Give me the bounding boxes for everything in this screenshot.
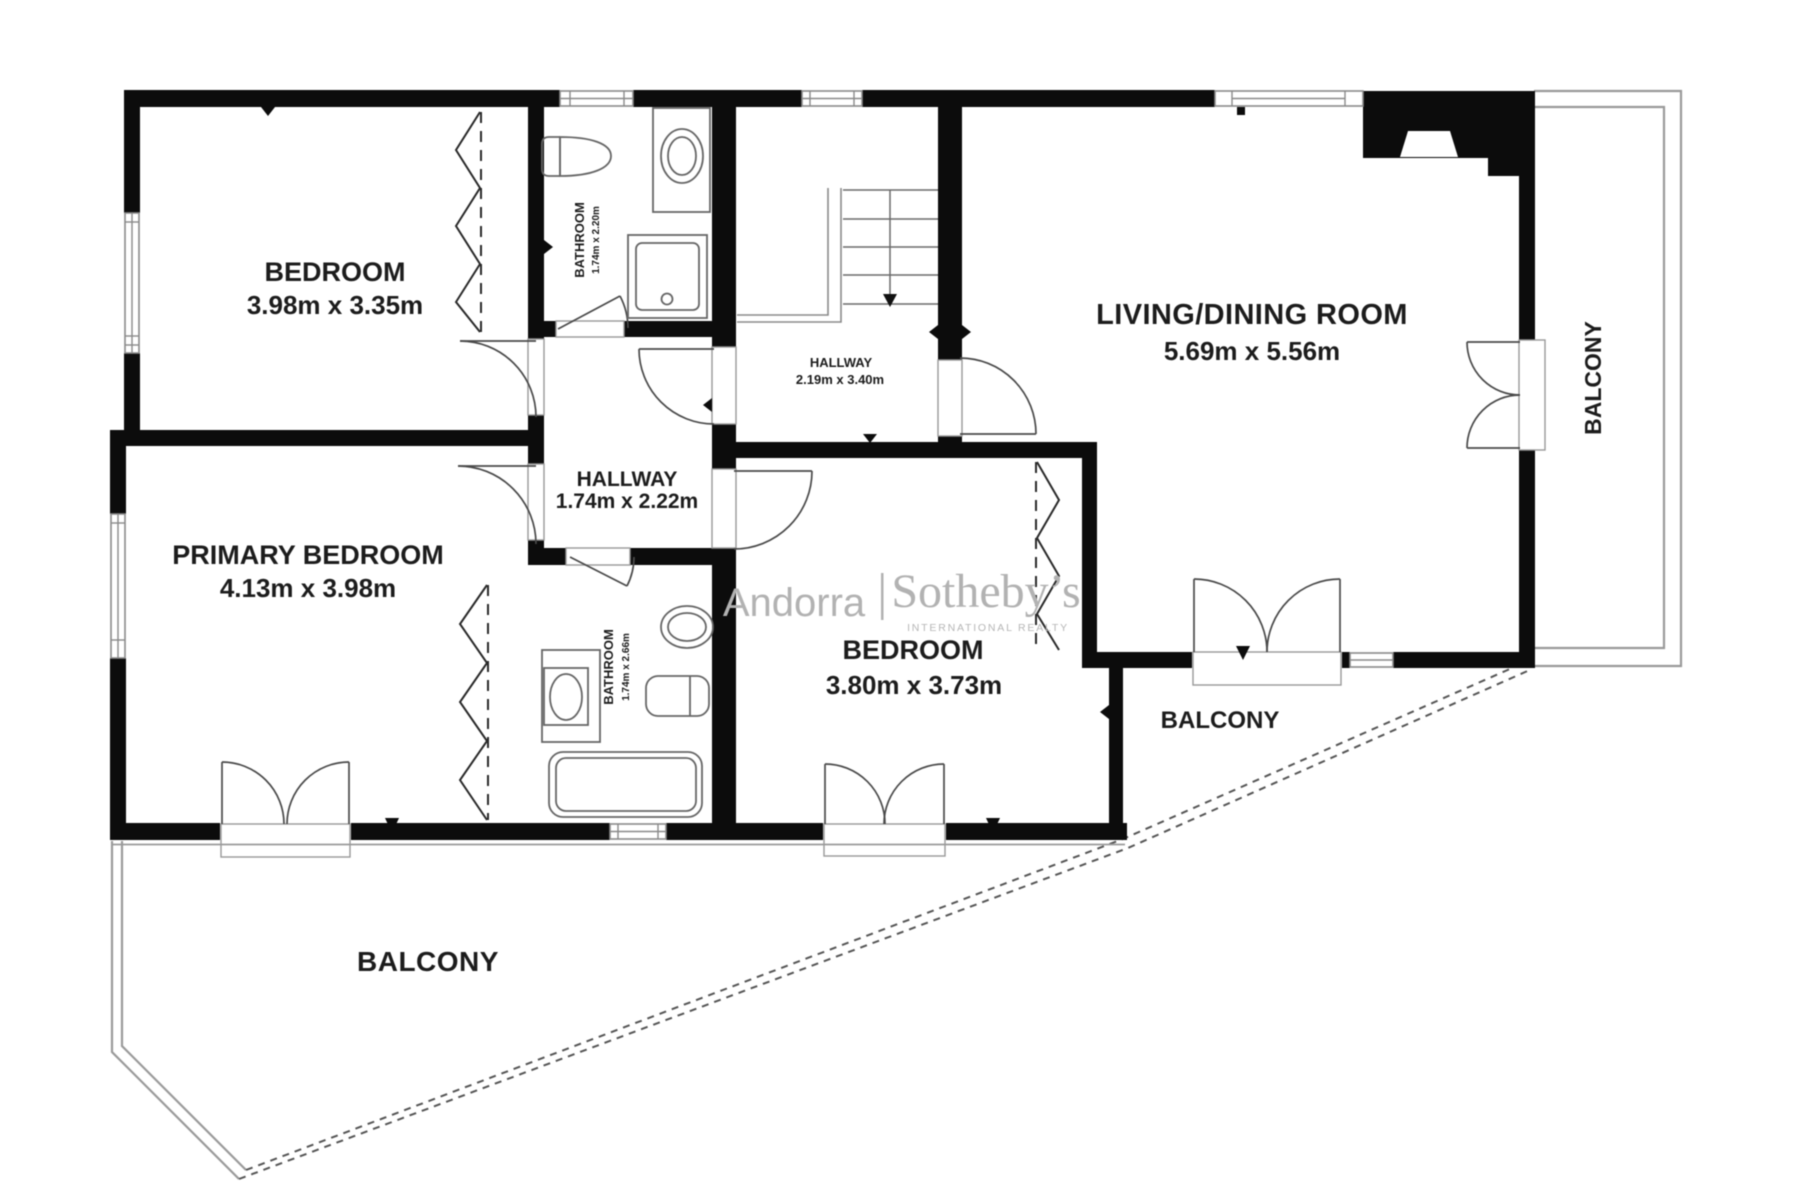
svg-text:BEDROOM: BEDROOM (843, 635, 984, 665)
svg-text:2.19m x 3.40m: 2.19m x 3.40m (796, 372, 884, 387)
svg-text:1.74m x 2.22m: 1.74m x 2.22m (556, 490, 698, 513)
svg-text:HALLWAY: HALLWAY (810, 355, 873, 370)
svg-text:INTERNATIONAL REALTY: INTERNATIONAL REALTY (907, 622, 1069, 634)
svg-text:4.13m x 3.98m: 4.13m x 3.98m (220, 573, 396, 603)
svg-text:BATHROOM: BATHROOM (601, 629, 616, 705)
svg-text:BALCONY: BALCONY (1580, 321, 1606, 435)
svg-text:BALCONY: BALCONY (357, 946, 499, 977)
svg-text:Andorra: Andorra (723, 581, 866, 625)
svg-text:HALLWAY: HALLWAY (577, 468, 678, 491)
svg-text:PRIMARY BEDROOM: PRIMARY BEDROOM (172, 540, 444, 570)
svg-text:3.98m x 3.35m: 3.98m x 3.35m (247, 290, 423, 320)
svg-text:BEDROOM: BEDROOM (265, 257, 406, 287)
svg-text:5.69m x 5.56m: 5.69m x 5.56m (1164, 336, 1340, 366)
svg-text:1.74m x 2.66m: 1.74m x 2.66m (621, 633, 632, 701)
svg-text:LIVING/DINING ROOM: LIVING/DINING ROOM (1096, 299, 1408, 331)
svg-text:BALCONY: BALCONY (1161, 707, 1280, 734)
svg-text:Sotheby’s: Sotheby’s (891, 565, 1080, 618)
svg-text:BATHROOM: BATHROOM (572, 202, 587, 278)
svg-text:1.74m x 2.20m: 1.74m x 2.20m (591, 206, 602, 274)
svg-text:3.80m x 3.73m: 3.80m x 3.73m (826, 670, 1002, 700)
